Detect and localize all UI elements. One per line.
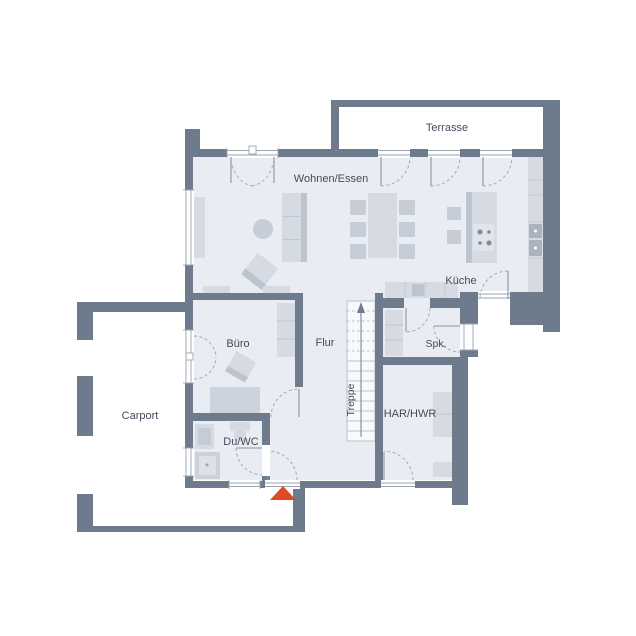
window	[183, 190, 194, 265]
room-label-flur: Flur	[316, 337, 335, 349]
dining-set	[350, 193, 415, 259]
room-label-du-wc: Du/WC	[223, 436, 259, 448]
wall-pantry-north-a	[377, 298, 404, 308]
wall-utility-east	[452, 357, 468, 505]
wall-south	[185, 481, 468, 488]
pantry-shelf	[385, 310, 403, 356]
kitchen-island	[466, 192, 497, 263]
floor-plan-svg: Terrasse Wohnen/Essen Küche Büro Flur Sp…	[0, 0, 636, 636]
sideboard	[203, 286, 230, 293]
porch-wall	[293, 488, 305, 532]
window	[183, 448, 194, 476]
room-label-wohnen-essen: Wohnen/Essen	[294, 173, 368, 185]
carport-pillar	[77, 302, 93, 340]
carport-pillar	[77, 376, 93, 436]
room-label-kueche: Küche	[445, 275, 476, 287]
wall-stairs-east	[375, 293, 383, 481]
wall-southeast-corner	[510, 292, 560, 325]
office-desk	[210, 387, 260, 413]
sofa	[282, 193, 307, 262]
room-label-spk: Spk.	[425, 338, 446, 350]
sideboard	[193, 197, 205, 258]
wall-wc-north	[185, 413, 270, 421]
wall-pantry-utility	[377, 357, 468, 365]
carport-wall-north	[77, 302, 193, 312]
room-label-har-hwr: HAR/HWR	[384, 408, 437, 420]
sideboard	[263, 286, 290, 293]
utility-appliances	[433, 392, 452, 477]
room-label-terrasse: Terrasse	[426, 122, 468, 134]
coffee-table	[253, 219, 273, 239]
window	[229, 480, 260, 489]
kitchen-counter	[528, 157, 543, 292]
office-wardrobe	[277, 303, 295, 357]
floor-plan-page: Terrasse Wohnen/Essen Küche Büro Flur Sp…	[0, 0, 636, 636]
room-label-buero: Büro	[226, 338, 249, 350]
carport-wall-south	[77, 526, 305, 532]
stool	[447, 207, 461, 220]
terrace-wall-west	[331, 100, 339, 149]
stool	[447, 230, 461, 244]
wall-pantry-north-b	[430, 298, 468, 308]
wall-living-office	[193, 293, 303, 300]
room-label-treppe: Treppe	[345, 383, 357, 416]
wall-wc-east-upper	[262, 413, 270, 445]
wall-office-hall	[295, 293, 303, 387]
room-label-carport: Carport	[122, 410, 159, 422]
terrace-wall-north	[331, 100, 557, 107]
